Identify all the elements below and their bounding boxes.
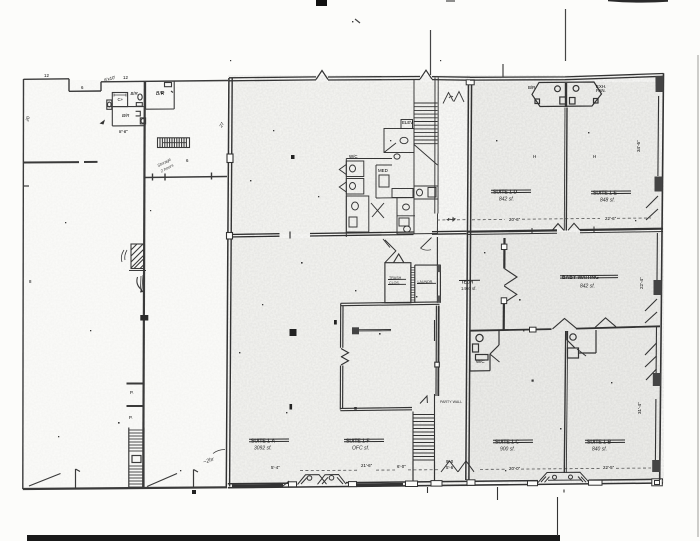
svg-text:22'-4": 22'-4" bbox=[639, 277, 644, 289]
svg-text:CLOS.: CLOS. bbox=[389, 281, 400, 285]
svg-text:B/R: B/R bbox=[528, 85, 535, 90]
svg-text:LAUNDR.: LAUNDR. bbox=[418, 280, 434, 284]
svg-text:B/R: B/R bbox=[131, 91, 139, 96]
svg-text:P.: P. bbox=[129, 415, 133, 420]
svg-text:FAN.: FAN. bbox=[596, 88, 606, 93]
svg-text:W/C: W/C bbox=[349, 154, 358, 159]
svg-text:5'-6: 5'-6 bbox=[446, 465, 454, 470]
svg-text:3092 sf.: 3092 sf. bbox=[254, 446, 272, 452]
svg-text:B/R: B/R bbox=[122, 113, 130, 118]
svg-text:PARTY WALL: PARTY WALL bbox=[440, 400, 462, 404]
svg-text:C+: C+ bbox=[118, 97, 124, 102]
svg-text:900 sf.: 900 sf. bbox=[500, 447, 515, 453]
svg-text:H: H bbox=[593, 154, 596, 159]
svg-text:12: 12 bbox=[123, 75, 128, 80]
svg-text:ELEV: ELEV bbox=[402, 120, 413, 125]
svg-text:34'-6": 34'-6" bbox=[636, 140, 641, 152]
svg-text:22'-5": 22'-5" bbox=[603, 465, 615, 470]
svg-text:22'-6": 22'-6" bbox=[605, 216, 617, 221]
svg-text:31'-4": 31'-4" bbox=[637, 402, 642, 414]
svg-text:848 sf.: 848 sf. bbox=[600, 198, 615, 204]
svg-text:8'-6": 8'-6" bbox=[119, 129, 128, 134]
svg-text:1460 sf.: 1460 sf. bbox=[461, 286, 477, 291]
svg-text:H: H bbox=[533, 154, 536, 159]
svg-text:842 sf.: 842 sf. bbox=[580, 284, 595, 290]
svg-text:9'-0: 9'-0 bbox=[446, 459, 454, 464]
svg-text:840 sf.: 840 sf. bbox=[592, 447, 607, 453]
svg-text:W/C: W/C bbox=[476, 359, 485, 364]
svg-text:OFC sf.: OFC sf. bbox=[352, 446, 369, 452]
svg-text:12: 12 bbox=[44, 73, 49, 78]
svg-text:20'-6": 20'-6" bbox=[509, 217, 521, 222]
svg-text:21'-6": 21'-6" bbox=[361, 463, 373, 468]
svg-text:P.: P. bbox=[130, 390, 134, 395]
svg-text:20'-0": 20'-0" bbox=[509, 466, 521, 471]
svg-text:4'-0": 4'-0" bbox=[447, 217, 456, 222]
svg-text:6'-0": 6'-0" bbox=[397, 464, 406, 469]
svg-text:TRASH: TRASH bbox=[389, 276, 402, 280]
svg-text:5'-4": 5'-4" bbox=[271, 465, 280, 470]
svg-text:MED: MED bbox=[378, 168, 388, 173]
svg-text:842 sf.: 842 sf. bbox=[499, 197, 514, 203]
